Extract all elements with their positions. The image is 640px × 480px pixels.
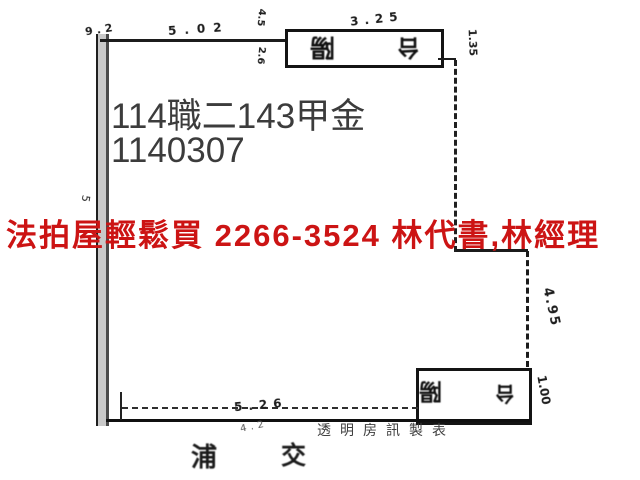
dim-top-balcony: 3.25 [349, 9, 404, 29]
floorplan-scan: 9.2 5.02 4.5 2.6 3.25 1.35 4.95 1.00 5 5… [0, 0, 640, 480]
dim-top-inner-b: 2.6 [254, 46, 267, 65]
case-number-line1: 114職二143甲金 [111, 99, 365, 134]
balcony-top-label-char2: 台 [397, 36, 420, 59]
dim-top-left: 9.2 [84, 21, 117, 39]
balcony-top-label-char1: 陽 [310, 34, 335, 59]
balcony-top-outline [285, 29, 444, 68]
dim-right-upper: 1.35 [466, 29, 480, 57]
case-number-line2: 1140307 [111, 133, 245, 168]
balcony-bottom-label-char1: 陽 [419, 380, 442, 403]
wall-top [100, 39, 290, 42]
street-char-a: 浦 [191, 444, 217, 470]
credit-line: 透明房訊製表 [317, 420, 455, 440]
advert-text: 法拍屋輕鬆買 2266-3524 林代書,林經理 [6, 220, 600, 251]
balcony-bottom-label-char2: 台 [495, 383, 515, 403]
dim-right-lower: 1.00 [534, 374, 553, 406]
dim-top-middle: 5.02 [168, 20, 230, 38]
dim-left-middle: 5 [78, 194, 92, 203]
dim-right-middle: 4.95 [540, 286, 563, 328]
wall-corner-bottom-left [120, 392, 122, 420]
dim-bottom: 5.26 [233, 396, 288, 415]
dim-top-inner-a: 4.5 [254, 8, 267, 27]
street-char-b: 交 [281, 444, 306, 469]
